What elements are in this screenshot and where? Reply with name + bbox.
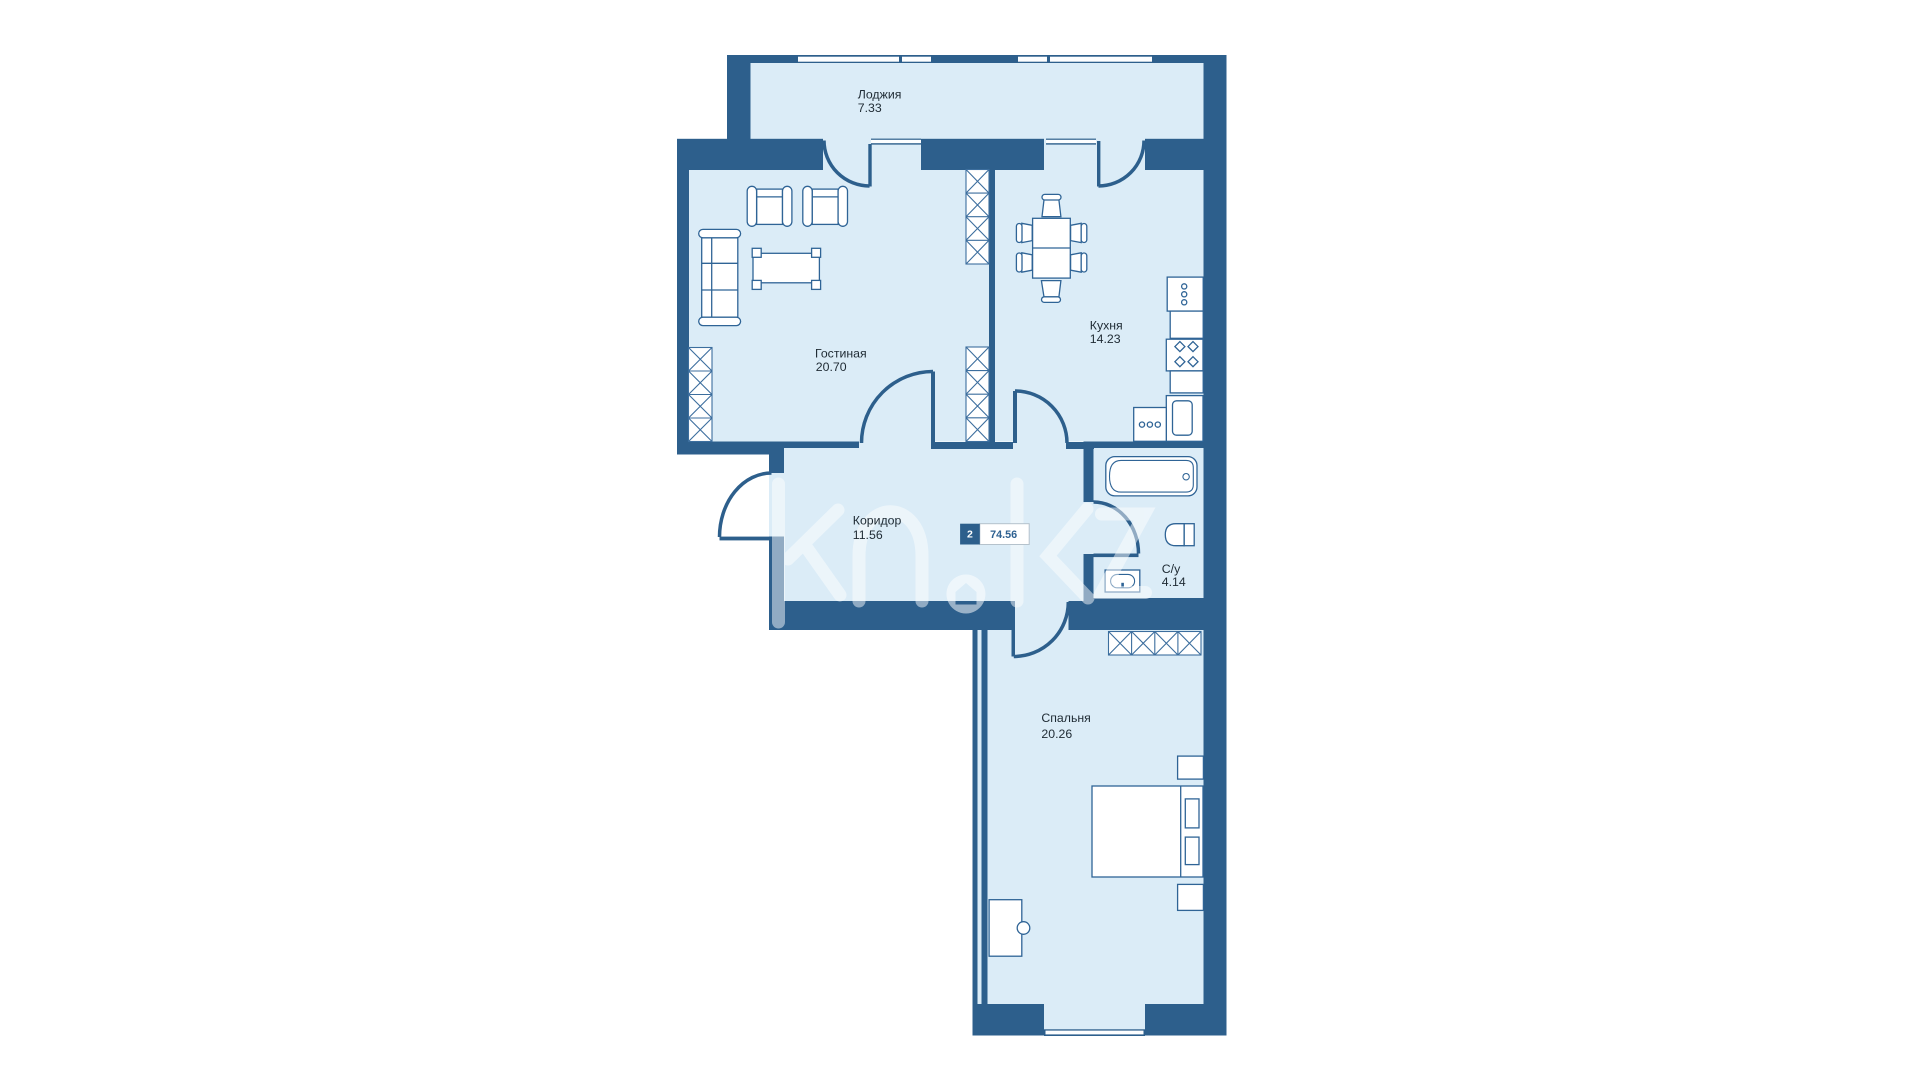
svg-text:4.14: 4.14 [1162, 575, 1186, 589]
svg-text:14.23: 14.23 [1090, 332, 1121, 346]
svg-text:Коридор: Коридор [853, 514, 902, 528]
svg-text:20.70: 20.70 [816, 360, 847, 374]
svg-text:Кухня: Кухня [1090, 319, 1123, 333]
svg-text:20.26: 20.26 [1041, 727, 1072, 741]
svg-text:11.56: 11.56 [853, 528, 883, 542]
svg-text:74.56: 74.56 [990, 529, 1017, 541]
svg-text:Лоджия: Лоджия [858, 88, 902, 102]
svg-text:7.33: 7.33 [858, 101, 882, 115]
svg-text:Гостиная: Гостиная [815, 347, 867, 361]
svg-text:Спальня: Спальня [1041, 711, 1090, 725]
svg-text:2: 2 [967, 529, 973, 541]
svg-text:С/у: С/у [1162, 562, 1181, 576]
